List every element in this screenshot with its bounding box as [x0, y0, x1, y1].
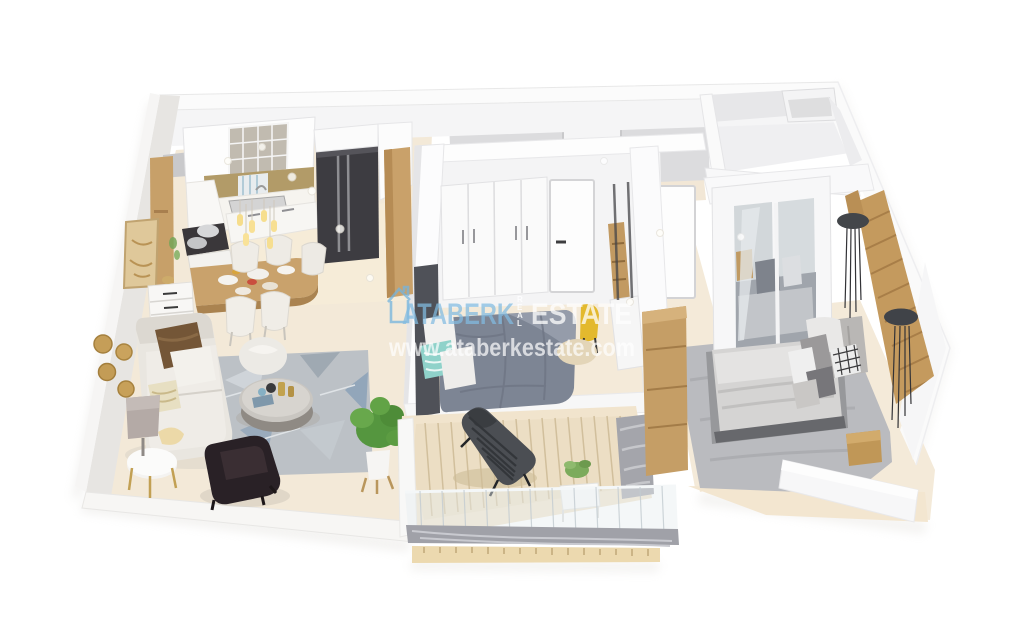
- svg-text:ESTATE: ESTATE: [531, 298, 632, 331]
- svg-text:www.ataberkestate.com: www.ataberkestate.com: [388, 334, 635, 362]
- svg-text:L: L: [517, 319, 522, 328]
- svg-text:ATABERK: ATABERK: [402, 298, 514, 331]
